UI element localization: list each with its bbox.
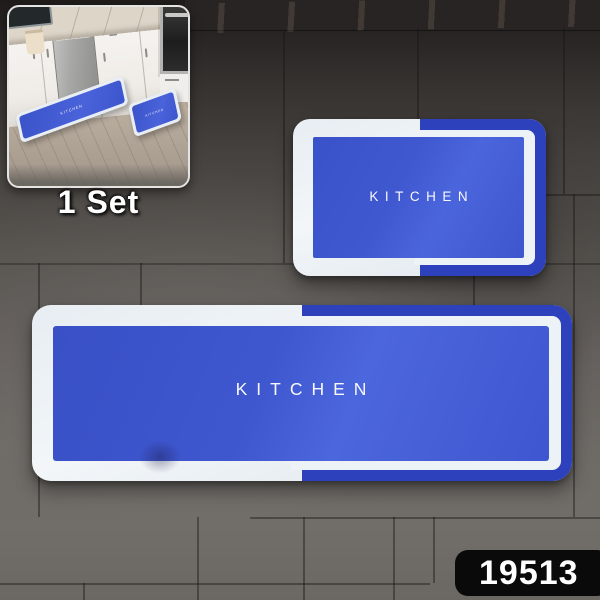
- tile-grout-line: [283, 30, 285, 263]
- small-kitchen-mat: KITCHEN: [293, 119, 546, 276]
- dark-counter-edge-band: [185, 0, 600, 31]
- tile-grout-line: [140, 263, 142, 305]
- inset-runner-mat-label: KITCHEN: [60, 103, 83, 115]
- tile-grout-line: [573, 194, 575, 517]
- product-photo-canvas: KITCHEN KITCHEN 1 Set KITCHEN KITCHEN 19…: [0, 0, 600, 600]
- tile-grout-line: [0, 583, 430, 585]
- small-mat-label: KITCHEN: [363, 189, 474, 204]
- inset-small-mat-label: KITCHEN: [145, 107, 164, 117]
- tile-grout-line: [563, 28, 565, 194]
- mat-shadow-smudge: [131, 434, 189, 480]
- tile-grout-line: [83, 583, 85, 600]
- cabinet-handle: [103, 53, 106, 62]
- tile-grout-line: [393, 517, 395, 600]
- tile-grout-line: [303, 517, 305, 600]
- small-mat-blue-field: KITCHEN: [313, 137, 524, 258]
- large-kitchen-mat: KITCHEN: [32, 305, 572, 481]
- sku-number: 19513: [479, 554, 579, 593]
- hanging-towel: [25, 29, 45, 55]
- wall-oven: [160, 5, 190, 74]
- large-mat-blue-field: KITCHEN: [53, 326, 549, 461]
- set-count-label: 1 Set: [7, 184, 190, 221]
- kitchen-inset-photo: KITCHEN KITCHEN: [7, 5, 190, 188]
- sku-badge: 19513: [455, 550, 600, 596]
- large-mat-label: KITCHEN: [227, 379, 376, 400]
- tile-grout-line: [433, 517, 435, 583]
- cabinet-handle: [145, 48, 148, 57]
- tile-grout-line: [197, 517, 199, 600]
- cabinet-handle: [46, 49, 49, 58]
